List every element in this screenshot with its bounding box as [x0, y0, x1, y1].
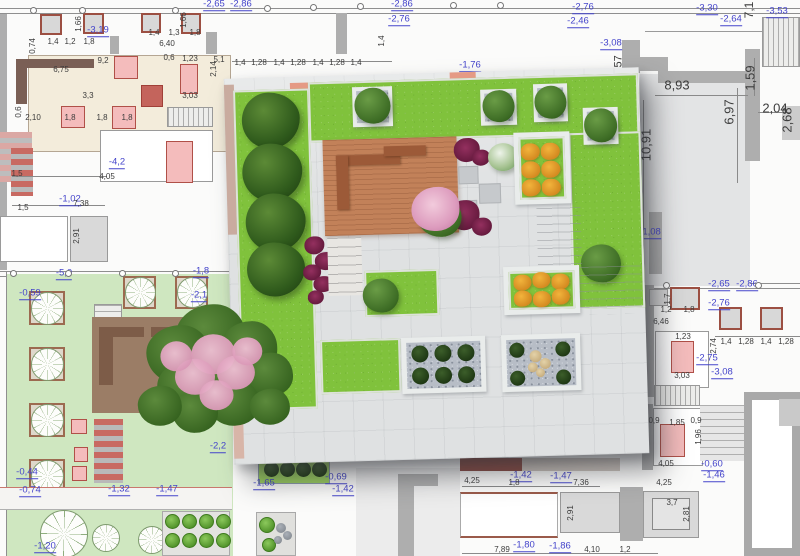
- dimension-label: 3,03: [182, 92, 198, 100]
- elevation-label: -2,65: [708, 279, 730, 291]
- elevation-label: -1,86: [549, 541, 571, 553]
- dimension-label: 1,66: [75, 16, 83, 32]
- dimension-label: 9,2: [97, 57, 108, 65]
- dimension-label: 1,28: [738, 338, 754, 346]
- elevation-label: -2,46: [567, 16, 589, 28]
- dimension-label: 3,03: [674, 372, 690, 380]
- dimension-label: 2,91: [567, 505, 575, 521]
- dimension-label: 1,4: [273, 59, 284, 67]
- dimension-label: 5,1: [213, 56, 224, 64]
- dimension-label: 1,66: [180, 12, 188, 28]
- dimension-label: 3,7: [666, 499, 677, 507]
- elevation-label: -4,2: [109, 157, 125, 169]
- elevation-label: -0,74: [19, 485, 41, 497]
- tree: [354, 87, 391, 124]
- dimension-label: 1,28: [251, 59, 267, 67]
- dimension-label: 0,74: [29, 38, 37, 54]
- dimension-label: 1,8: [64, 114, 75, 122]
- foliage-blob: [137, 385, 182, 426]
- elevation-label: -3,53: [766, 6, 788, 18]
- dimension-label: 6,97: [723, 99, 736, 124]
- dimension-label: 1,8: [96, 114, 107, 122]
- bush-planter: [401, 336, 487, 394]
- dimension-label: 1,23: [182, 55, 198, 63]
- dimension-label: 1,4: [312, 59, 323, 67]
- tree: [534, 85, 567, 119]
- survey-point: [497, 2, 504, 9]
- survey-point: [310, 4, 317, 11]
- elevation-label: -0,69: [325, 472, 347, 484]
- dimension-label: 1,4: [234, 59, 245, 67]
- dimension-label: 6,40: [159, 40, 175, 48]
- flower-bed: [503, 265, 580, 315]
- dimension-label: 1,59: [744, 65, 757, 90]
- render-3d-overlay: [224, 67, 650, 464]
- paver-tile: [479, 183, 502, 204]
- survey-point: [755, 282, 762, 289]
- elevation-label: -3,30: [696, 3, 718, 15]
- dimension-label: 1,4: [47, 38, 58, 46]
- elevation-label: -1,65: [253, 478, 275, 490]
- foliage-blob: [249, 388, 290, 425]
- dimension-label: 1,4: [378, 35, 386, 46]
- dimension-label: 1,4: [148, 29, 159, 37]
- dimension-label: 7,89: [494, 546, 510, 554]
- survey-point: [79, 7, 86, 14]
- dimension-label: 1,96: [695, 429, 703, 445]
- elevation-label: -3,08: [600, 38, 622, 50]
- survey-point: [172, 7, 179, 14]
- survey-point: [119, 270, 126, 277]
- dimension-label: 1,5: [17, 204, 28, 212]
- dimension-label: 1,8: [683, 306, 694, 314]
- survey-point: [450, 2, 457, 9]
- dimension-label: 4,05: [99, 173, 115, 181]
- site-plan-canvas: -2,76-2,46-3,08-3,30-2,64-3,53-1,08-3,19…: [0, 0, 800, 556]
- dimension-label: 2,81: [683, 506, 691, 522]
- dimension-label: 1,2: [660, 306, 671, 314]
- survey-point: [30, 7, 37, 14]
- elevation-label: -0,59: [19, 288, 41, 300]
- dimension-label: 4,25: [464, 477, 480, 485]
- dimension-label: 1,8: [189, 29, 200, 37]
- dimension-label: 1,28: [329, 59, 345, 67]
- elevation-label: -1,76: [459, 60, 481, 72]
- dimension-label: 4,10: [584, 546, 600, 554]
- dimension-label: 3,3: [82, 92, 93, 100]
- flower-cluster-purple: [472, 217, 492, 236]
- dimension-label: 1,85: [669, 419, 685, 427]
- survey-point: [264, 5, 271, 12]
- elevation-label: -1,8: [193, 266, 209, 278]
- bench: [384, 145, 426, 156]
- elevation-label: -2,76: [388, 14, 410, 26]
- survey-point: [65, 270, 72, 277]
- elevation-label: -2,64: [720, 14, 742, 26]
- dimension-label: 1,4: [760, 338, 771, 346]
- blossom-tree: [135, 291, 325, 461]
- dimension-label: 0,9: [690, 417, 701, 425]
- dimension-label: 1,28: [290, 59, 306, 67]
- dimension-label: 7,1: [743, 2, 755, 19]
- elevation-label: -2,76: [572, 2, 594, 14]
- dimension-label: 1,8: [121, 114, 132, 122]
- dimension-label: 0,9: [648, 417, 659, 425]
- dimension-label: 10,91: [640, 129, 653, 162]
- dimension-label: 1,4: [720, 338, 731, 346]
- elevation-label: -1,20: [34, 541, 56, 553]
- dimension-label: 1,8: [508, 479, 519, 487]
- elevation-label: -0,44: [16, 467, 38, 479]
- dimension-label: 1,23: [675, 333, 691, 341]
- dimension-label: 1,2: [619, 546, 630, 554]
- elevation-label: -2,86: [230, 0, 252, 11]
- dimension-label: 4,05: [658, 460, 674, 468]
- survey-point: [10, 270, 17, 277]
- stone-planter: [501, 333, 582, 392]
- tree: [482, 90, 515, 123]
- elevation-label: -1,47: [156, 484, 178, 496]
- elevation-label: -1,80: [513, 540, 535, 552]
- bench: [336, 155, 350, 209]
- grass-bottom: [320, 338, 401, 394]
- dimension-label: 4,25: [656, 479, 672, 487]
- dimension-label: 6,75: [53, 66, 69, 74]
- elevation-label: -1,47: [550, 471, 572, 483]
- deck-steps: [327, 237, 363, 296]
- elevation-label: -1,46: [703, 470, 725, 482]
- elevation-label: -2,65: [203, 0, 225, 11]
- plaza-stairs: [536, 207, 582, 270]
- blossom-shrub: [411, 186, 460, 231]
- dimension-label: 2,91: [73, 228, 81, 244]
- elevation-label: -1,32: [108, 484, 130, 496]
- dimension-label: 1,5: [11, 170, 22, 178]
- tree: [362, 278, 399, 313]
- survey-point: [172, 270, 179, 277]
- flower-bed: [513, 131, 571, 205]
- dimension-label: 1,8: [83, 38, 94, 46]
- survey-point: [357, 3, 364, 10]
- elevation-label: -1,42: [332, 484, 354, 496]
- dimension-label: 2,68: [781, 107, 794, 132]
- dimension-label: 2,10: [25, 114, 41, 122]
- plaza-stairs: [579, 265, 642, 315]
- dimension-label: 0,6: [163, 54, 174, 62]
- dimension-label: 2,74: [710, 338, 718, 354]
- dimension-label: 8,93: [664, 79, 689, 92]
- dimension-label: 6,46: [653, 318, 669, 326]
- dimension-label: 1,7: [664, 293, 672, 304]
- dimension-label: 1,2: [64, 38, 75, 46]
- dimension-label: 1,4: [350, 59, 361, 67]
- elevation-label: -3,08: [711, 367, 733, 379]
- dimension-label: 1,3: [168, 29, 179, 37]
- elevation-label: -2,86: [391, 0, 413, 11]
- tree: [584, 108, 618, 143]
- elevation-label: -2,76: [708, 298, 730, 310]
- paver-tile: [458, 166, 478, 185]
- dimension-label: 1,28: [778, 338, 794, 346]
- dimension-label: 7,38: [73, 200, 89, 208]
- elevation-label: -2,75: [696, 353, 718, 365]
- dimension-label: 7,36: [573, 479, 589, 487]
- survey-point: [663, 282, 670, 289]
- elevation-label: -3,19: [87, 25, 109, 37]
- dimension-label: 0,6: [15, 106, 23, 117]
